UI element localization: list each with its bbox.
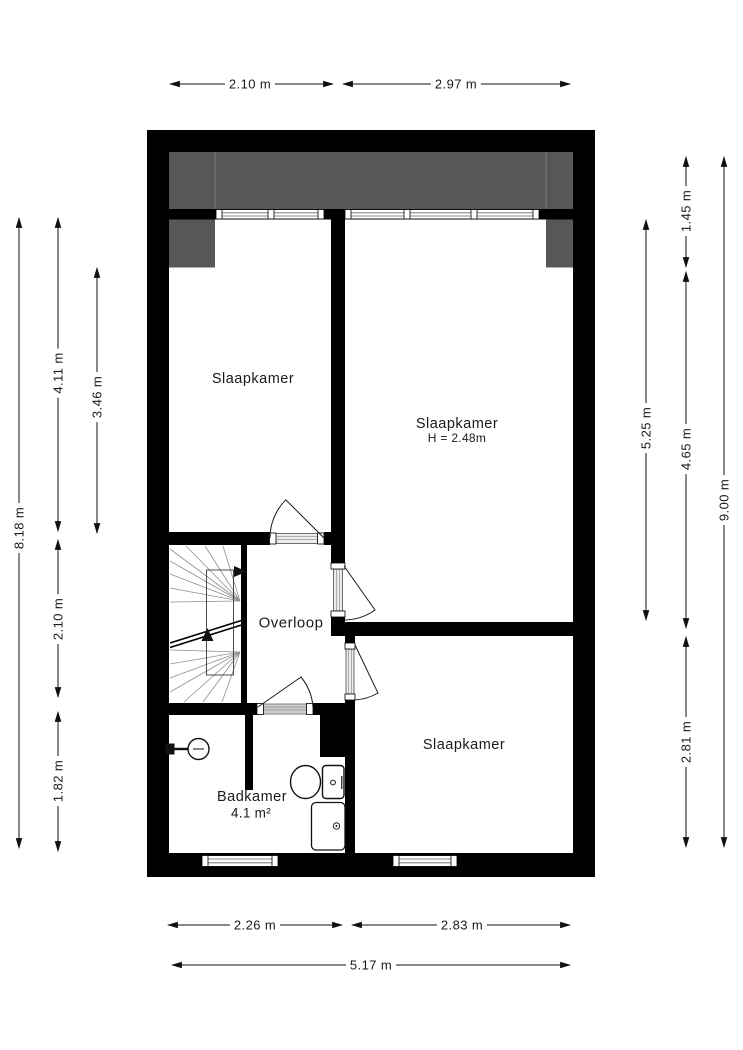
room-area-badkamer: 4.1 m²	[231, 806, 271, 821]
room-label-overloop: Overloop	[259, 615, 324, 632]
room-label-slaapkamer-topleft: Slaapkamer	[212, 371, 294, 387]
dim-top-1: 2.10 m	[225, 77, 275, 92]
floor-plan-drawing	[0, 0, 743, 1050]
dim-bottom-2: 2.83 m	[437, 918, 487, 933]
window-bottom-left	[202, 856, 278, 867]
door-top	[270, 500, 325, 544]
room-height-note: H = 2.48m	[428, 431, 486, 445]
window-bottom-right	[393, 856, 457, 867]
window-top-left	[216, 210, 324, 220]
room-label-slaapkamer-bottom: Slaapkamer	[423, 737, 505, 753]
shower-icon	[166, 739, 210, 760]
room-label-badkamer: Badkamer	[217, 789, 287, 805]
dim-left-2: 3.46 m	[90, 372, 105, 422]
dim-right-3: 4.65 m	[679, 424, 694, 474]
window-top-right	[345, 210, 539, 220]
dim-left-total: 8.18 m	[12, 503, 27, 553]
sink-icon	[312, 803, 346, 851]
dim-left-1: 4.11 m	[51, 348, 66, 397]
dim-left-4: 1.82 m	[51, 756, 66, 806]
floor-plan: Slaapkamer Slaapkamer H = 2.48m Overloop…	[0, 0, 743, 1050]
toilet-icon	[291, 766, 345, 799]
room-label-slaapkamer-right: Slaapkamer	[416, 416, 498, 432]
dim-bottom-1: 2.26 m	[230, 918, 280, 933]
door-bottom-right	[345, 643, 378, 700]
door-right	[331, 563, 375, 620]
dim-top-2: 2.97 m	[431, 77, 481, 92]
doors	[257, 500, 378, 715]
dim-right-1: 1.45 m	[679, 186, 694, 236]
dim-bottom-total: 5.17 m	[346, 958, 396, 973]
dim-right-2: 5.25 m	[639, 403, 654, 453]
door-bathroom	[257, 677, 313, 715]
dim-right-4: 2.81 m	[679, 717, 694, 767]
dim-right-total: 9.00 m	[717, 475, 732, 525]
staircase	[170, 546, 247, 702]
dim-left-3: 2.10 m	[51, 594, 66, 644]
